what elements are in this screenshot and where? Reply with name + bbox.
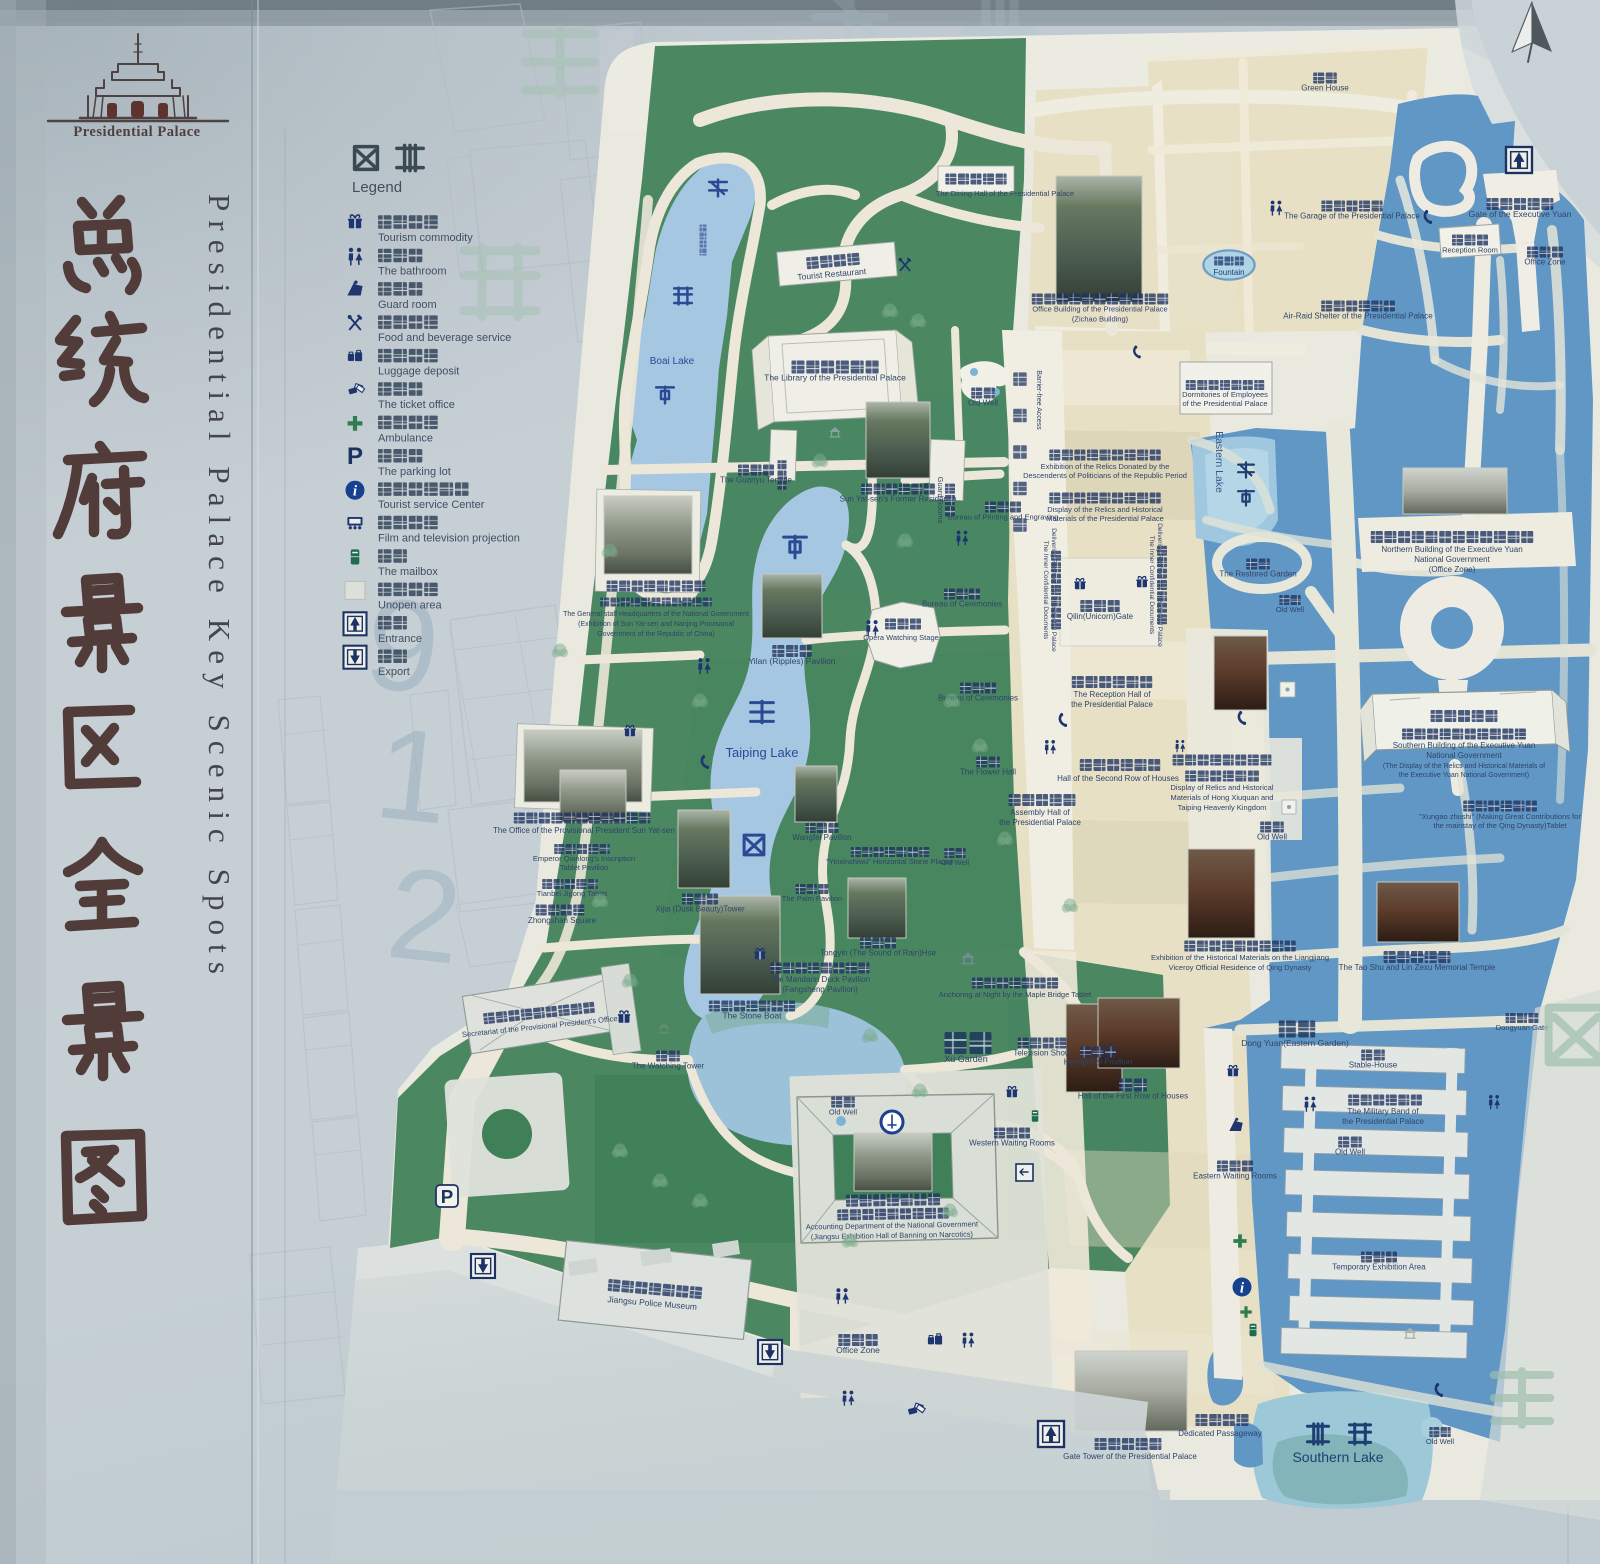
svg-text:Old Well: Old Well bbox=[968, 399, 998, 408]
svg-text:Dormitories of Employees: Dormitories of Employees bbox=[1182, 390, 1268, 399]
svg-text:the Presidential Palace: the Presidential Palace bbox=[1342, 1117, 1424, 1126]
svg-text:Anchoring at Night by the Mapl: Anchoring at Night by the Maple Bridge T… bbox=[939, 990, 1092, 999]
svg-text:Delivering Room of the Preside: Delivering Room of the Presidential Pala… bbox=[1156, 523, 1163, 647]
svg-text:Government of the Republic of: Government of the Republic of China) bbox=[597, 631, 715, 638]
svg-text:Gate of the Executive Yuan: Gate of the Executive Yuan bbox=[1469, 209, 1572, 219]
svg-text:Guard room: Guard room bbox=[378, 299, 437, 311]
svg-text:Green House: Green House bbox=[1301, 84, 1349, 93]
svg-text:Unopen area: Unopen area bbox=[378, 599, 442, 611]
svg-text:Old Well: Old Well bbox=[1276, 605, 1305, 614]
svg-text:The Flower Hall: The Flower Hall bbox=[960, 768, 1016, 777]
svg-text:Hall of the First Row of House: Hall of the First Row of Houses bbox=[1078, 1092, 1188, 1101]
svg-text:The Mandarin Duck Pavilion: The Mandarin Duck Pavilion bbox=[770, 975, 870, 984]
svg-text:Northern Building of the Execu: Northern Building of the Executive Yuan bbox=[1381, 545, 1522, 554]
svg-text:Office Zone: Office Zone bbox=[836, 1345, 880, 1355]
svg-text:The mailbox: The mailbox bbox=[378, 566, 438, 578]
svg-text:Film and television projection: Film and television projection bbox=[378, 533, 520, 545]
svg-text:(Exhibition of Sun Yat-sen and: (Exhibition of Sun Yat-sen and Nanjing P… bbox=[578, 621, 734, 628]
svg-text:The Watching Tower: The Watching Tower bbox=[632, 1062, 705, 1071]
svg-text:"Yinxinshiwu" Horizontal Stone: "Yinxinshiwu" Horizontal Stone Plaque bbox=[826, 857, 954, 866]
svg-text:Temporary Exhibition Area: Temporary Exhibition Area bbox=[1332, 1263, 1426, 1272]
svg-text:Yilan (Ripples) Pavilion: Yilan (Ripples) Pavilion bbox=[748, 656, 835, 666]
svg-text:The Library of the Presidentia: The Library of the Presidential Palace bbox=[764, 373, 906, 383]
svg-text:Hexagonal Pavilion: Hexagonal Pavilion bbox=[1064, 1058, 1133, 1067]
svg-text:Exhibition of the Relics Donat: Exhibition of the Relics Donated by the bbox=[1041, 462, 1170, 471]
svg-text:Bureau of Ceremonies: Bureau of Ceremonies bbox=[922, 600, 1002, 609]
svg-text:Export: Export bbox=[378, 666, 410, 678]
svg-text:Exhibition of the Historical M: Exhibition of the Historical Materials o… bbox=[1151, 953, 1329, 962]
svg-text:The parking lot: The parking lot bbox=[378, 466, 451, 478]
svg-text:Tourism commodity: Tourism commodity bbox=[378, 232, 473, 244]
svg-text:Wangfei Pavilion: Wangfei Pavilion bbox=[792, 833, 851, 842]
svg-text:Television Show: Television Show bbox=[1013, 1049, 1071, 1058]
svg-text:Taiping Heavenly Kingdom: Taiping Heavenly Kingdom bbox=[1178, 803, 1267, 812]
svg-text:The ticket office: The ticket office bbox=[378, 399, 455, 411]
svg-text:Assembly Hall of: Assembly Hall of bbox=[1010, 808, 1070, 817]
svg-text:Office Building of the Preside: Office Building of the Presidential Pala… bbox=[1032, 305, 1167, 314]
svg-text:Display of Relics and Historic: Display of Relics and Historical bbox=[1171, 783, 1274, 792]
svg-text:Materials of the Presidential: Materials of the Presidential Palace bbox=[1046, 514, 1164, 523]
svg-text:Legend: Legend bbox=[352, 179, 402, 196]
svg-text:Food and beverage service: Food and beverage service bbox=[378, 332, 511, 344]
svg-text:(Fangsheng Pavilion): (Fangsheng Pavilion) bbox=[782, 985, 858, 994]
svg-text:Taiping Lake: Taiping Lake bbox=[726, 745, 799, 760]
svg-text:Opera Watching Stage: Opera Watching Stage bbox=[863, 633, 939, 642]
svg-text:Tourist service Center: Tourist service Center bbox=[378, 499, 485, 511]
svg-text:The Garage of the Presidential: The Garage of the Presidential Palace bbox=[1284, 212, 1420, 221]
svg-text:The Inner Confidential Documen: The Inner Confidential Documents bbox=[1148, 536, 1155, 635]
svg-text:the Presidential Palace: the Presidential Palace bbox=[999, 818, 1081, 827]
svg-text:Entrance: Entrance bbox=[378, 633, 422, 645]
svg-text:Barrier-free Access: Barrier-free Access bbox=[1035, 370, 1042, 430]
svg-text:Old Well: Old Well bbox=[1257, 833, 1287, 842]
svg-text:Delivering Room of the Preside: Delivering Room of the Presidential Pala… bbox=[1050, 528, 1057, 652]
svg-text:Dong Yuan(Eastern Garden): Dong Yuan(Eastern Garden) bbox=[1241, 1038, 1349, 1048]
svg-text:Dedicated Passageway: Dedicated Passageway bbox=[1178, 1429, 1262, 1438]
svg-text:Tongyin (The Sound of Rain)Hse: Tongyin (The Sound of Rain)Hse bbox=[820, 949, 937, 958]
svg-text:Emperor Qianlong's Inscription: Emperor Qianlong's Inscription bbox=[533, 854, 635, 863]
svg-text:Dongyuan Gate: Dongyuan Gate bbox=[1496, 1023, 1549, 1032]
svg-text:2: 2 bbox=[381, 839, 468, 992]
svg-text:Air-Raid Shelter of the Presid: Air-Raid Shelter of the Presidential Pal… bbox=[1283, 312, 1433, 321]
svg-text:The Reception Hall of: The Reception Hall of bbox=[1074, 690, 1152, 699]
svg-text:National Government: National Government bbox=[1414, 555, 1490, 564]
svg-text:Tablet Pavilion: Tablet Pavilion bbox=[560, 863, 608, 872]
svg-text:P: P bbox=[347, 443, 363, 470]
svg-text:Southern Building of the Execu: Southern Building of the Executive Yuan bbox=[1393, 741, 1536, 750]
svg-text:Hall of the Second Row of Hous: Hall of the Second Row of Houses bbox=[1057, 774, 1179, 783]
svg-text:Boai Lake: Boai Lake bbox=[650, 356, 695, 367]
svg-text:the Presidential Palace: the Presidential Palace bbox=[1071, 700, 1153, 709]
svg-text:The bathroom: The bathroom bbox=[378, 265, 446, 277]
svg-text:Eastern Lake: Eastern Lake bbox=[1213, 431, 1225, 493]
svg-text:(Zichao Building): (Zichao Building) bbox=[1072, 315, 1129, 324]
svg-text:Ambulance: Ambulance bbox=[378, 432, 433, 444]
svg-text:Old Well: Old Well bbox=[1426, 1437, 1455, 1446]
svg-text:Descendents of Politicians of: Descendents of Politicians of the Republ… bbox=[1023, 471, 1187, 480]
svg-text:The Tao Shu and Lin Zexu Memor: The Tao Shu and Lin Zexu Memorial Temple bbox=[1339, 963, 1496, 972]
svg-text:Stable-House: Stable-House bbox=[1349, 1061, 1398, 1070]
svg-text:Xu Garden: Xu Garden bbox=[944, 1054, 988, 1064]
svg-text:Eastern Waiting Rooms: Eastern Waiting Rooms bbox=[1193, 1172, 1277, 1181]
svg-text:1: 1 bbox=[369, 699, 456, 852]
svg-text:Materials of Hong Xiuquan and: Materials of Hong Xiuquan and bbox=[1171, 793, 1274, 802]
svg-text:Old Well: Old Well bbox=[1335, 1148, 1365, 1157]
svg-text:The Dining Hall of the Preside: The Dining Hall of the Presidential Pala… bbox=[936, 189, 1074, 198]
svg-text:the mainstay of the Qing Dynas: the mainstay of the Qing Dynasty)Tablet bbox=[1434, 821, 1568, 830]
svg-text:National Government: National Government bbox=[1426, 751, 1502, 760]
svg-text:Western Waiting Rooms: Western Waiting Rooms bbox=[969, 1139, 1055, 1148]
svg-text:Qilin(Unicorn)Gate: Qilin(Unicorn)Gate bbox=[1067, 612, 1134, 621]
svg-text:Old Well: Old Well bbox=[941, 858, 970, 867]
svg-text:Viceroy Official Residence of: Viceroy Official Residence of Qing Dynas… bbox=[1169, 963, 1312, 972]
svg-text:(Office Zone): (Office Zone) bbox=[1429, 565, 1476, 574]
svg-text:(The Display of the Relics and: (The Display of the Relics and Historica… bbox=[1383, 763, 1545, 770]
svg-text:Presidential Palace Key Scenic: Presidential Palace Key Scenic Spots bbox=[202, 194, 237, 983]
svg-text:Fountain: Fountain bbox=[1213, 268, 1244, 277]
svg-text:The General staff Headquarters: The General staff Headquarters of the Na… bbox=[563, 611, 749, 618]
svg-text:The Inner Confidential Documen: The Inner Confidential Documents bbox=[1042, 541, 1049, 640]
svg-text:Gate Tower of the Presidential: Gate Tower of the Presidential Palace bbox=[1063, 1452, 1197, 1461]
svg-text:Zhongshan Square: Zhongshan Square bbox=[528, 916, 597, 925]
svg-text:Xijia (Dusk Beauty)Tower: Xijia (Dusk Beauty)Tower bbox=[655, 905, 745, 914]
svg-text:P: P bbox=[441, 1186, 453, 1207]
svg-text:Old Well: Old Well bbox=[829, 1108, 858, 1117]
svg-text:Display of the Relics and Hist: Display of the Relics and Historical bbox=[1047, 505, 1163, 514]
svg-text:The Military Band of: The Military Band of bbox=[1347, 1107, 1419, 1116]
svg-text:of the Presidential Palace: of the Presidential Palace bbox=[1182, 399, 1267, 408]
svg-text:The Restored Garden: The Restored Garden bbox=[1219, 570, 1296, 579]
svg-text:Presidential Palace: Presidential Palace bbox=[73, 124, 200, 140]
svg-text:the Executive Yuan National Go: the Executive Yuan National Government) bbox=[1399, 772, 1529, 779]
svg-text:Office Zone: Office Zone bbox=[1524, 258, 1566, 267]
svg-text:The Stone Boat: The Stone Boat bbox=[722, 1011, 782, 1021]
svg-text:Luggage deposit: Luggage deposit bbox=[378, 366, 459, 378]
svg-text:"Xungao zhushi" (Making Great: "Xungao zhushi" (Making Great Contributi… bbox=[1419, 812, 1581, 821]
svg-text:Southern Lake: Southern Lake bbox=[1292, 1449, 1383, 1465]
svg-text:Bureau of Printing and Engravi: Bureau of Printing and Engraving bbox=[948, 513, 1059, 522]
svg-text:The Office of the Provisional: The Office of the Provisional President … bbox=[493, 826, 675, 835]
svg-text:Reception Room: Reception Room bbox=[1442, 246, 1498, 255]
svg-text:Guard Rooms: Guard Rooms bbox=[936, 477, 945, 524]
svg-text:The Palm Pavilion: The Palm Pavilion bbox=[782, 894, 842, 903]
